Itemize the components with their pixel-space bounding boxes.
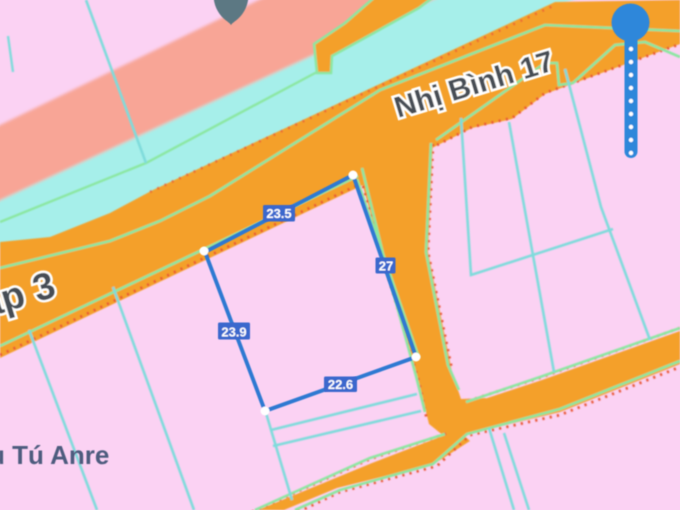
svg-text:27: 27 [379,259,393,274]
svg-text:22.6: 22.6 [328,377,353,392]
svg-text:u Tú Anre: u Tú Anre [0,440,109,470]
svg-text:23.5: 23.5 [266,206,291,221]
svg-text:23.9: 23.9 [221,325,246,340]
